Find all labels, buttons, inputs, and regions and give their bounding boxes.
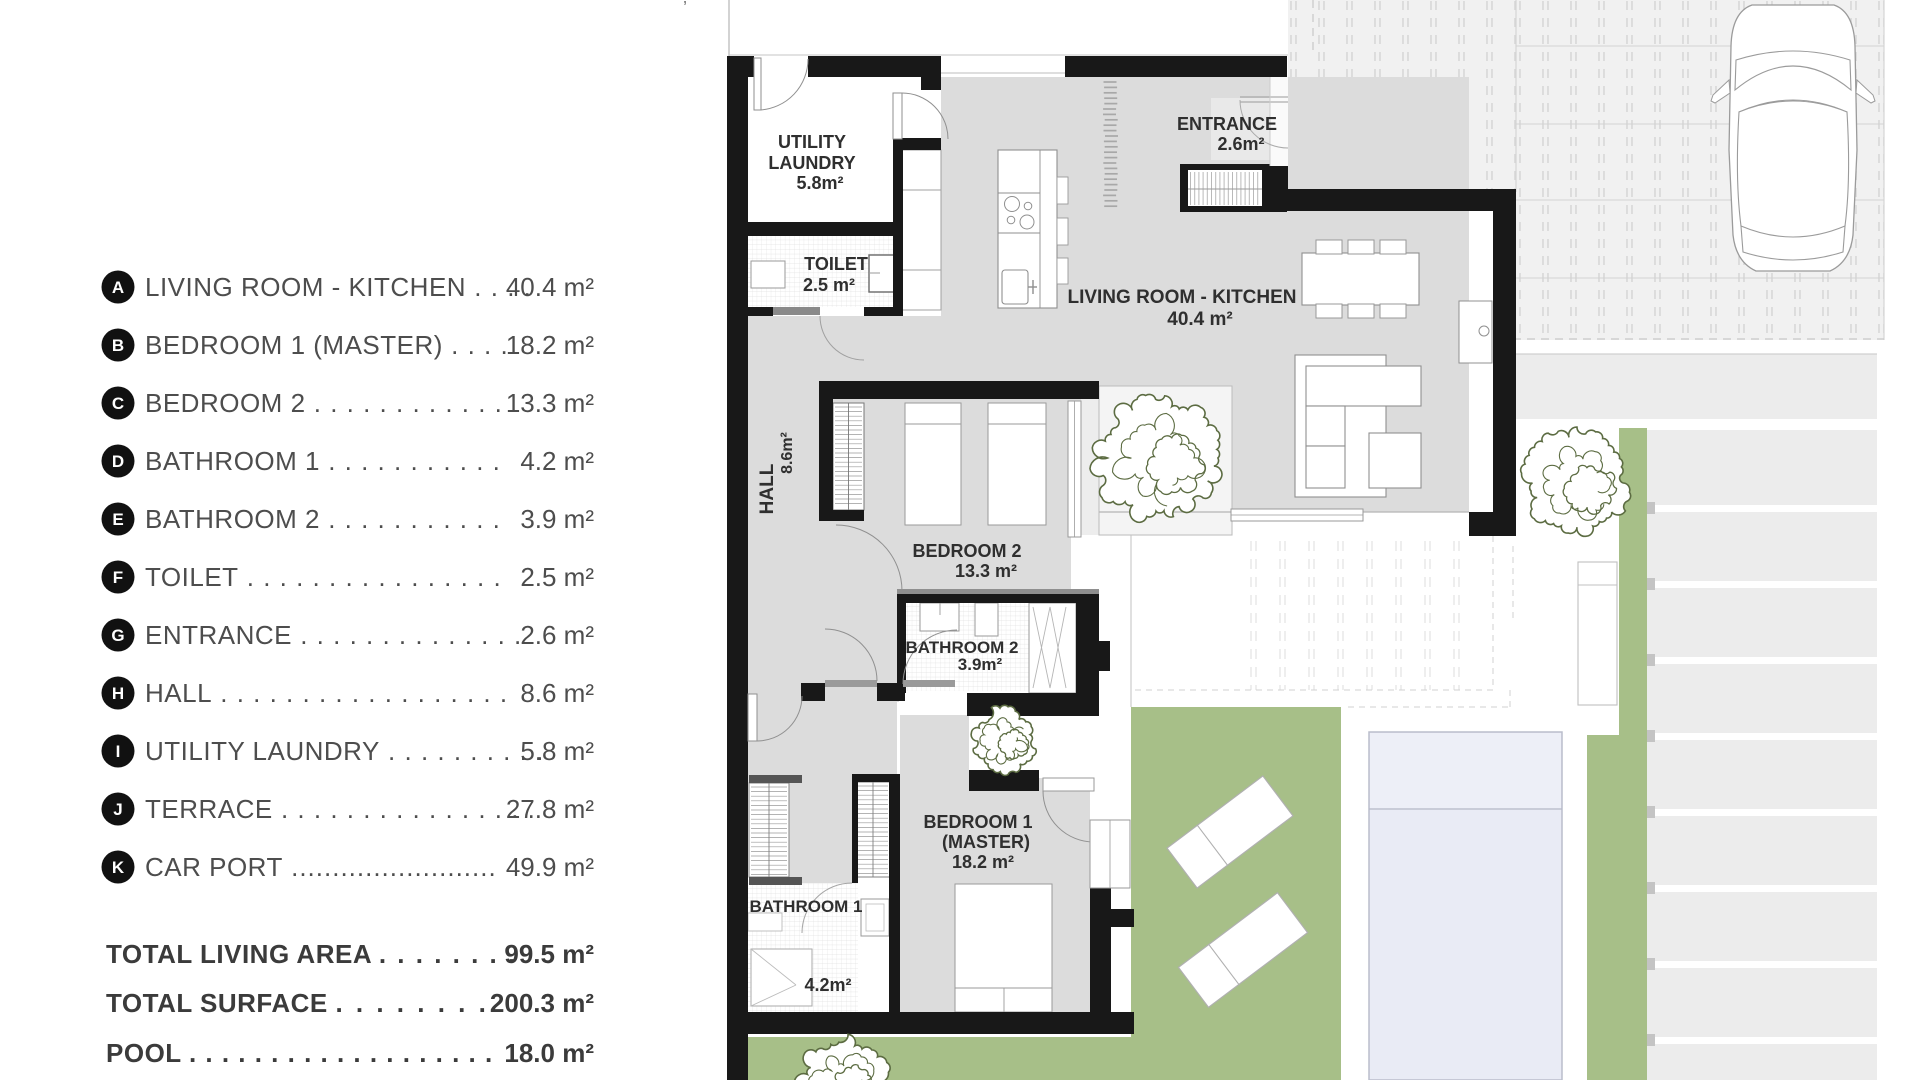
svg-text:BEDROOM 2 . . . . . . . . . .: BEDROOM 2 . . . . . . . . . . . . — [145, 388, 503, 418]
svg-text:18.2 m²: 18.2 m² — [506, 330, 594, 360]
svg-text:TERRACE . . . . . . . . . . .: TERRACE . . . . . . . . . . . . . . . . — [145, 794, 536, 824]
svg-text:BEDROOM 1: BEDROOM 1 — [923, 812, 1032, 832]
svg-text:CAR PORT .....................: CAR PORT ......................... — [145, 852, 497, 882]
svg-text:HALL . . . . . . . . . . . . .: HALL . . . . . . . . . . . . . . . . . . — [145, 678, 508, 708]
svg-text:G: G — [111, 626, 124, 645]
svg-text:H: H — [112, 684, 124, 703]
svg-text:TOTAL LIVING AREA . . . . . .: TOTAL LIVING AREA . . . . . . . . — [106, 939, 517, 969]
svg-text:LIVING ROOM - KITCHEN: LIVING ROOM - KITCHEN — [1067, 287, 1296, 308]
svg-text:4.2m²: 4.2m² — [804, 975, 851, 995]
svg-text:18.2 m²: 18.2 m² — [952, 852, 1014, 872]
svg-text:27.8 m²: 27.8 m² — [506, 794, 594, 824]
svg-text:ENTRANCE: ENTRANCE — [1177, 114, 1277, 134]
svg-text:2.6 m²: 2.6 m² — [520, 620, 594, 650]
svg-text:3.9 m²: 3.9 m² — [520, 504, 594, 534]
svg-text:40.4 m²: 40.4 m² — [506, 272, 594, 302]
svg-text:F: F — [113, 568, 123, 587]
svg-text:ENTRANCE . . . . . . . . . .: ENTRANCE . . . . . . . . . . . . . . — [145, 620, 522, 650]
svg-text:B: B — [112, 336, 124, 355]
svg-text:40.4 m²: 40.4 m² — [1167, 309, 1232, 330]
svg-text:I: I — [116, 742, 121, 761]
svg-text:99.5 m²: 99.5 m² — [504, 939, 594, 969]
svg-text:UTILITY: UTILITY — [778, 132, 846, 152]
svg-text:HALL: HALL — [757, 463, 778, 514]
svg-text:K: K — [112, 858, 125, 877]
svg-text:3.9m²: 3.9m² — [958, 655, 1003, 674]
svg-text:13.3 m²: 13.3 m² — [506, 388, 594, 418]
svg-text:13.3 m²: 13.3 m² — [955, 561, 1017, 581]
svg-text:8.6 m²: 8.6 m² — [520, 678, 594, 708]
svg-text:2.6m²: 2.6m² — [1217, 134, 1264, 154]
svg-text:49.9 m²: 49.9 m² — [506, 852, 594, 882]
svg-text:2.5 m²: 2.5 m² — [520, 562, 594, 592]
svg-text:BATHROOM 2 . . . . . . . . . .: BATHROOM 2 . . . . . . . . . . . — [145, 504, 501, 534]
svg-text:5.8m²: 5.8m² — [796, 173, 843, 193]
svg-text:BEDROOM 2: BEDROOM 2 — [912, 541, 1021, 561]
svg-text:8.6m²: 8.6m² — [779, 432, 796, 474]
svg-text:A: A — [112, 278, 124, 297]
svg-text:18.0 m²: 18.0 m² — [504, 1038, 594, 1068]
svg-text:2.5 m²: 2.5 m² — [803, 275, 855, 295]
svg-text:4.2 m²: 4.2 m² — [520, 446, 594, 476]
svg-text:BATHROOM 1 . . . . . . . . . .: BATHROOM 1 . . . . . . . . . . . — [145, 446, 501, 476]
svg-text:BEDROOM 1 (MASTER) . . . .: BEDROOM 1 (MASTER) . . . . — [145, 330, 509, 360]
svg-text:D: D — [112, 452, 124, 471]
svg-text:200.3 m²: 200.3 m² — [490, 988, 594, 1018]
svg-text:BATHROOM 1: BATHROOM 1 — [749, 897, 862, 916]
svg-text:’: ’ — [683, 0, 687, 18]
svg-text:LIVING ROOM - KITCHEN . . . .: LIVING ROOM - KITCHEN . . . . — [145, 272, 532, 302]
svg-text:TOILET . . . . . . . . . . . .: TOILET . . . . . . . . . . . . . . . . — [145, 562, 502, 592]
svg-text:UTILITY LAUNDRY . . . . . . .: UTILITY LAUNDRY . . . . . . . . . . — [145, 736, 544, 766]
svg-text:(MASTER): (MASTER) — [942, 832, 1030, 852]
svg-text:TOTAL SURFACE . . . . . . .: TOTAL SURFACE . . . . . . . . — [106, 988, 489, 1018]
svg-text:J: J — [113, 800, 122, 819]
svg-text:LAUNDRY: LAUNDRY — [768, 153, 855, 173]
svg-text:POOL . . . . . . . . . . . . .: POOL . . . . . . . . . . . . . . . . . .… — [106, 1038, 493, 1068]
svg-text:C: C — [112, 394, 124, 413]
svg-text:5.8 m²: 5.8 m² — [520, 736, 594, 766]
svg-text:TOILET: TOILET — [804, 254, 868, 274]
svg-text:E: E — [112, 510, 123, 529]
